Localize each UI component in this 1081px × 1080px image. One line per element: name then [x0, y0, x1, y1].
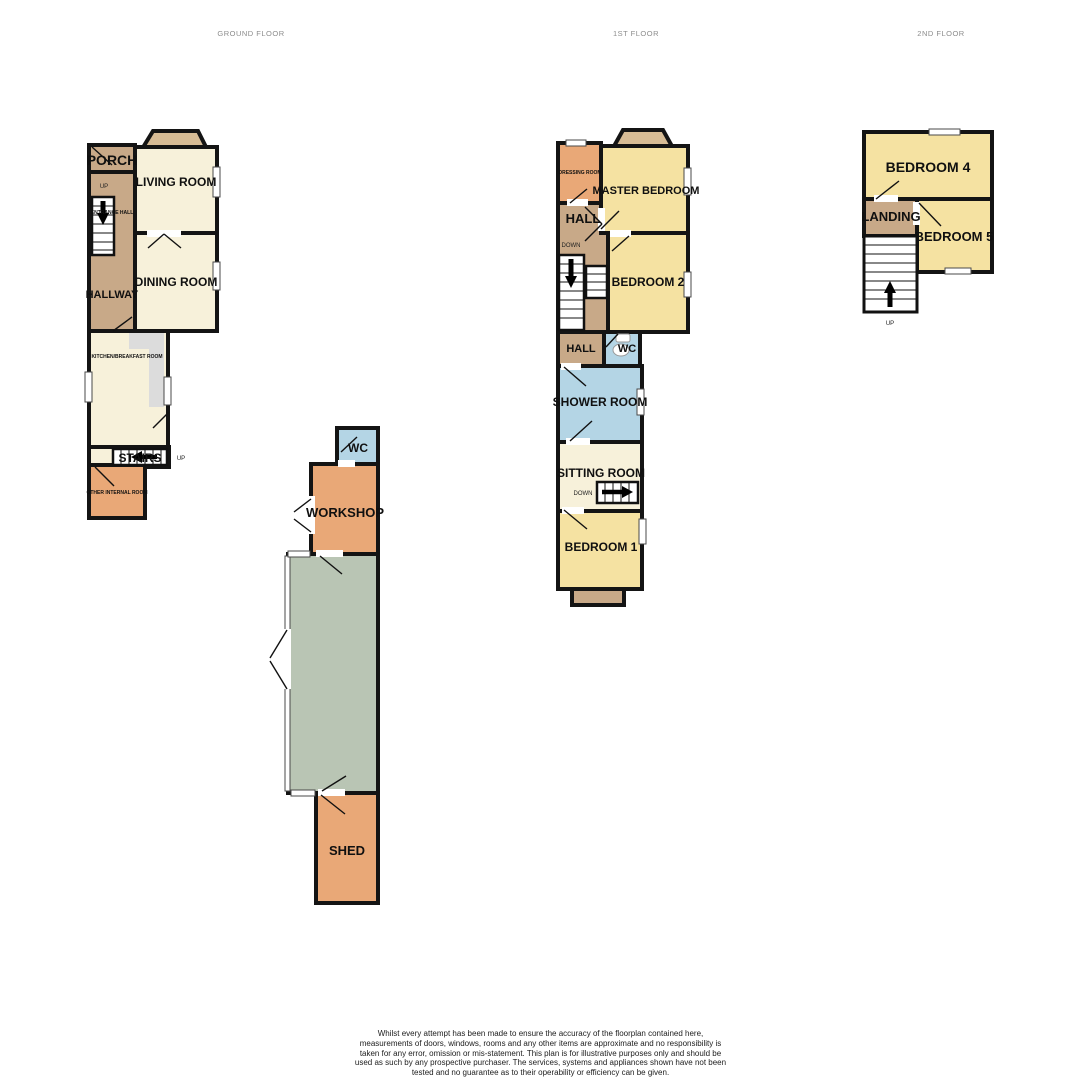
floorplan-svg: PORCH LIVING ROOM UP ENTRANCE HALL HALLW…: [0, 0, 1081, 1080]
window: [929, 129, 960, 135]
second-floor-plan: BEDROOM 4 LANDING BEDROOM 5 UP: [861, 129, 993, 327]
door-gap: [566, 438, 590, 445]
kitchen-label: KITCHEN/BREAKFAST ROOM: [91, 354, 162, 360]
master-bedroom-label: MASTER BEDROOM: [593, 185, 700, 197]
bedroom-4-label: BEDROOM 4: [886, 159, 971, 175]
workshop-label: WORKSHOP: [306, 505, 384, 520]
footer: Whilst every attempt has been made to en…: [351, 1029, 731, 1080]
shower-room-label: SHOWER ROOM: [553, 395, 648, 409]
living-room: [135, 147, 217, 233]
hall-lower-label: HALL: [566, 343, 596, 355]
up-label: UP: [100, 184, 108, 190]
up-label: UP: [886, 321, 894, 327]
floorplan-page: GROUND FLOOR 1ST FLOOR 2ND FLOOR: [0, 0, 1081, 1080]
window: [288, 551, 310, 557]
hall-upper-label: HALL: [566, 211, 601, 226]
window: [945, 268, 971, 274]
stairs-up-label: UP: [177, 456, 185, 462]
shed-label: SHED: [329, 843, 365, 858]
window: [639, 519, 646, 544]
door-gap: [147, 230, 181, 237]
window: [684, 272, 691, 297]
window: [164, 377, 171, 405]
bedroom-2-label: BEDROOM 2: [612, 275, 685, 289]
landing-label: LANDING: [861, 209, 920, 224]
hallway-label: HALLWAY: [86, 289, 139, 301]
entrance-hall-label: ENTRANCE HALL: [91, 210, 134, 216]
door-gap: [561, 363, 581, 370]
first-floor-plan: DRESSING ROOM MASTER BEDROOM HALL DOWN B…: [553, 130, 700, 605]
down-label: DOWN: [562, 243, 581, 249]
outbuilding-wc-label: WC: [348, 441, 368, 455]
bedroom-1-label: BEDROOM 1: [565, 540, 638, 554]
window: [291, 790, 315, 796]
bedroom-1-bump: [572, 589, 624, 605]
disclaimer-text: Whilst every attempt has been made to en…: [351, 1029, 731, 1078]
outbuilding-plan: WC WORKSHOP SHED: [270, 428, 384, 903]
door-gap: [338, 460, 355, 467]
bedroom-5-label: BEDROOM 5: [915, 229, 994, 244]
dining-room-label: DINING ROOM: [135, 275, 218, 289]
kitchen-counter: [129, 333, 164, 349]
other-internal-room-label: OTHER INTERNAL ROOM: [86, 490, 147, 496]
porch-label: PORCH: [87, 152, 138, 168]
door-gap: [284, 629, 291, 689]
stairs-label: STAIRS: [118, 451, 161, 465]
dressing-room-label: DRESSING ROOM: [558, 170, 601, 176]
door-gap: [610, 230, 631, 237]
toilet-icon: [616, 334, 630, 342]
wc-label: WC: [618, 343, 636, 355]
garden-room: [288, 554, 378, 793]
window: [85, 372, 92, 402]
living-room-label: LIVING ROOM: [136, 175, 217, 189]
sitting-room-label: SITTING ROOM: [557, 466, 645, 480]
down-label: DOWN: [574, 491, 593, 497]
ground-floor-plan: PORCH LIVING ROOM UP ENTRANCE HALL HALLW…: [85, 131, 220, 518]
window: [566, 140, 586, 146]
